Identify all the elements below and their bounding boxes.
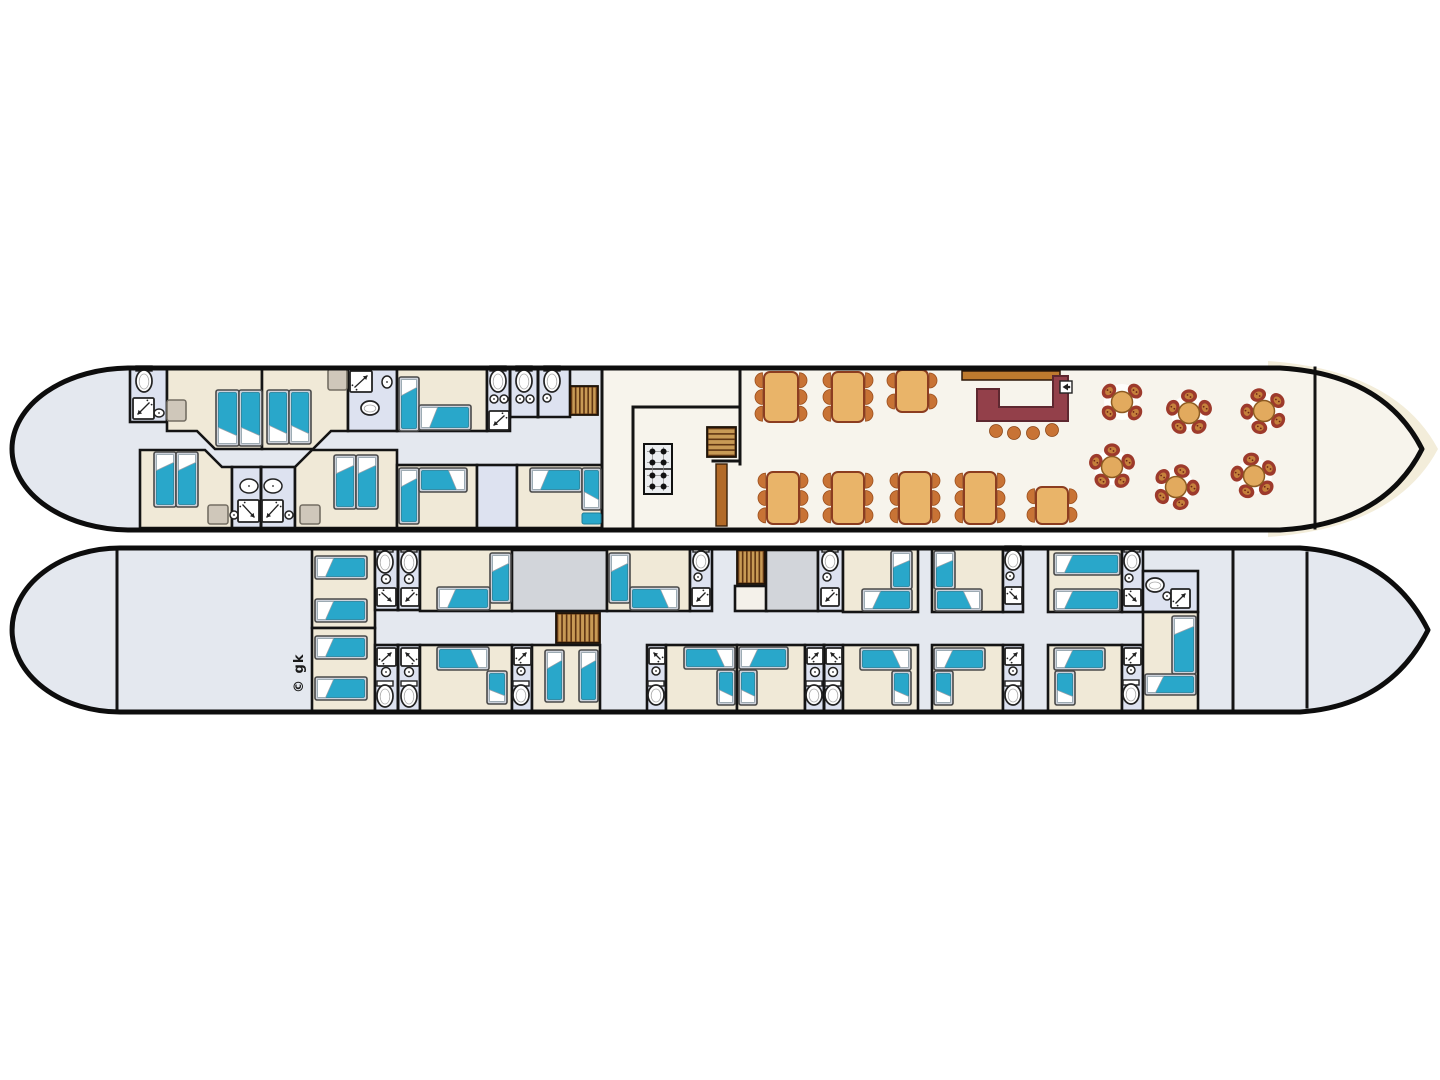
stair-step	[585, 388, 588, 414]
burner	[649, 460, 655, 466]
dining-table	[764, 372, 798, 422]
burner	[661, 473, 667, 479]
sink-drain	[1166, 595, 1168, 597]
copyright-text: © gk	[292, 654, 307, 693]
chair-dot	[1252, 459, 1254, 461]
chair-dot	[1096, 462, 1098, 464]
stair-step	[577, 615, 580, 642]
sink-drain	[1009, 575, 1011, 577]
chair-dot	[1163, 477, 1165, 479]
spray-dot	[411, 663, 413, 665]
burner	[661, 449, 667, 455]
spray-dot	[383, 589, 385, 591]
stair-step	[593, 388, 596, 414]
chair-dot	[1197, 425, 1199, 427]
stair-step	[595, 615, 598, 642]
sink-drain	[814, 671, 816, 673]
chair-dot	[1270, 468, 1272, 470]
chair-dot	[1235, 472, 1237, 474]
chair-dot	[1181, 503, 1183, 505]
chair-dot	[1163, 497, 1165, 499]
spray-dot	[416, 658, 418, 660]
landing	[735, 586, 767, 611]
dining-table	[899, 472, 931, 524]
stair-step	[590, 615, 593, 642]
spray-dot	[831, 589, 833, 591]
chair-dot	[1093, 460, 1095, 462]
lounge-table	[1254, 401, 1275, 422]
stair-step	[572, 615, 575, 642]
chair-dot	[1100, 479, 1102, 481]
sink-drain	[288, 514, 290, 516]
sink-drain	[826, 576, 828, 578]
spray-dot	[1177, 605, 1179, 607]
spray-dot	[1130, 662, 1132, 664]
chair-dot	[1103, 481, 1105, 483]
spray-dot	[808, 656, 810, 658]
sink-drain	[1130, 669, 1132, 671]
dining-table	[832, 472, 864, 524]
sink-drain	[386, 381, 388, 383]
chair-dot	[1126, 460, 1128, 462]
spray-dot	[1172, 600, 1174, 602]
sink-drain	[272, 485, 274, 487]
spray-dot	[411, 589, 413, 591]
chair-dot	[1259, 395, 1261, 397]
bar-back-counter	[962, 371, 1060, 380]
sink-drain	[248, 485, 250, 487]
chair-dot	[1107, 411, 1109, 413]
door	[716, 464, 727, 526]
sink-drain	[385, 578, 387, 580]
burner	[661, 484, 667, 490]
stair-step	[576, 388, 579, 414]
stair-step	[709, 451, 735, 455]
bar-stool	[990, 425, 1003, 438]
lounge-table	[1244, 466, 1265, 487]
chair-dot	[1276, 419, 1278, 421]
chair-dot	[1248, 412, 1250, 414]
stair-step	[581, 388, 584, 414]
chair-dot	[1136, 413, 1138, 415]
stair-step	[586, 615, 589, 642]
burner	[649, 484, 655, 490]
chair-dot	[1260, 427, 1262, 429]
chair-dot	[1247, 491, 1249, 493]
chair-dot	[1136, 391, 1138, 393]
spray-dot	[280, 506, 282, 508]
spray-dot	[356, 389, 358, 391]
spray-dot	[707, 594, 709, 596]
spray-dot	[1011, 662, 1013, 664]
spray-dot	[502, 412, 504, 414]
sink-drain	[1012, 670, 1014, 672]
sink-drain	[519, 398, 521, 400]
chair-dot	[1107, 389, 1109, 391]
chair-dot	[1133, 411, 1135, 413]
stair-step	[739, 552, 742, 583]
chair-dot	[1187, 394, 1189, 396]
chair-dot	[1123, 481, 1125, 483]
sink-drain	[655, 670, 657, 672]
stair-step	[748, 552, 751, 583]
lower-deck: © gk	[12, 546, 1428, 712]
chair-dot	[1278, 401, 1280, 403]
chair-dot	[1110, 413, 1112, 415]
chair-dot	[1249, 457, 1251, 459]
spray-dot	[352, 384, 354, 386]
spray-dot	[702, 589, 704, 591]
chair-dot	[1267, 466, 1269, 468]
chair-dot	[1256, 393, 1258, 395]
upper-deck	[12, 361, 1438, 537]
stair-step	[756, 552, 759, 583]
spray-dot	[657, 661, 659, 663]
wardrobe	[208, 505, 228, 524]
chair-dot	[1244, 489, 1246, 491]
chair-dot	[1113, 450, 1115, 452]
chair-dot	[1173, 408, 1175, 410]
spray-dot	[662, 656, 664, 658]
chair-dot	[1206, 408, 1208, 410]
wardrobe	[167, 400, 186, 421]
spray-dot	[379, 594, 381, 596]
bar-stool	[1046, 424, 1059, 437]
tap-glyph-dot	[1068, 386, 1071, 389]
chair-dot	[1133, 389, 1135, 391]
spray-dot	[239, 506, 241, 508]
sink-drain	[233, 514, 235, 516]
stair-step	[743, 552, 746, 583]
spray-dot	[836, 594, 838, 596]
chair-dot	[1110, 448, 1112, 450]
dining-table	[767, 472, 799, 524]
chair-dot	[1170, 406, 1172, 408]
cushion	[582, 513, 601, 524]
lounge-chair-seat	[1185, 393, 1194, 400]
spray-dot	[275, 502, 277, 504]
ship-deck-plan: © gk	[0, 0, 1440, 1080]
spray-dot	[151, 404, 153, 406]
chair-dot	[1245, 410, 1247, 412]
chair-dot	[1179, 469, 1181, 471]
spray-dot	[813, 661, 815, 663]
chair-dot	[1275, 399, 1277, 401]
sink-drain	[493, 398, 495, 400]
sink-drain	[503, 398, 505, 400]
spray-dot	[383, 663, 385, 665]
chair-dot	[1264, 486, 1266, 488]
stair-step	[589, 388, 592, 414]
spray-dot	[1130, 590, 1132, 592]
spray-dot	[515, 657, 517, 659]
spray-dot	[834, 661, 836, 663]
deck-plan-canvas: © gk	[0, 0, 1440, 1080]
service-room	[512, 550, 607, 611]
spray-dot	[1125, 657, 1127, 659]
wardrobe	[328, 369, 347, 390]
chair-dot	[1194, 488, 1196, 490]
sink-drain	[832, 671, 834, 673]
lounge-table	[1102, 457, 1123, 478]
spray-dot	[416, 594, 418, 596]
dining-table	[1036, 487, 1068, 524]
sink-drain	[408, 671, 410, 673]
chair-dot	[1200, 427, 1202, 429]
lounge-table	[1166, 477, 1187, 498]
chair-dot	[1178, 501, 1180, 503]
toilet-icon	[1146, 578, 1164, 592]
chair-dot	[1267, 488, 1269, 490]
stair-step	[581, 615, 584, 642]
burner	[649, 449, 655, 455]
sink-drain	[385, 671, 387, 673]
burner	[649, 473, 655, 479]
spray-dot	[520, 662, 522, 664]
dining-table	[832, 372, 864, 422]
chair-dot	[1203, 406, 1205, 408]
spray-dot	[379, 658, 381, 660]
lounge-table-group	[1099, 381, 1145, 424]
sink-drain	[1128, 577, 1130, 579]
sink-drain	[520, 670, 522, 672]
lounge-table	[1112, 392, 1133, 413]
stair-step	[760, 552, 763, 583]
service-room	[766, 550, 818, 611]
spray-dot	[1125, 595, 1127, 597]
chair-dot	[1180, 427, 1182, 429]
stair-step	[752, 552, 755, 583]
spray-dot	[506, 417, 508, 419]
stair-step	[558, 615, 561, 642]
spray-dot	[1011, 588, 1013, 590]
chair-dot	[1120, 479, 1122, 481]
dining-table	[964, 472, 996, 524]
chair-dot	[1279, 421, 1281, 423]
bar-stool	[1027, 427, 1040, 440]
spray-dot	[1006, 593, 1008, 595]
sink-drain	[408, 578, 410, 580]
chair-dot	[1257, 425, 1259, 427]
chair-dot	[1191, 486, 1193, 488]
wardrobe	[300, 505, 320, 524]
stair-step	[563, 615, 566, 642]
chair-dot	[1182, 471, 1184, 473]
chair-dot	[1160, 495, 1162, 497]
stair-step	[572, 388, 575, 414]
chair-dot	[1129, 462, 1131, 464]
sink-drain	[529, 398, 531, 400]
spray-dot	[146, 399, 148, 401]
spray-dot	[839, 656, 841, 658]
chair-dot	[1190, 396, 1192, 398]
burner	[661, 460, 667, 466]
chair-dot	[1238, 474, 1240, 476]
chair-dot	[1160, 475, 1162, 477]
spray-dot	[244, 502, 246, 504]
stair-step	[709, 429, 735, 433]
stair-step	[709, 435, 735, 439]
lounge-table	[1179, 403, 1200, 424]
sink-drain	[158, 412, 160, 414]
chair-dot	[1110, 391, 1112, 393]
chair-dot	[1177, 425, 1179, 427]
toilet-icon	[361, 401, 379, 415]
bar-stool	[1008, 427, 1021, 440]
sink-drain	[546, 397, 548, 399]
dining-table	[896, 370, 928, 412]
stair-step	[709, 440, 735, 444]
sink-drain	[697, 576, 699, 578]
bathroom	[477, 465, 517, 528]
stair-step	[567, 615, 570, 642]
stair-step	[709, 446, 735, 450]
spray-dot	[1006, 657, 1008, 659]
lounge-chair-seat	[1108, 447, 1117, 454]
